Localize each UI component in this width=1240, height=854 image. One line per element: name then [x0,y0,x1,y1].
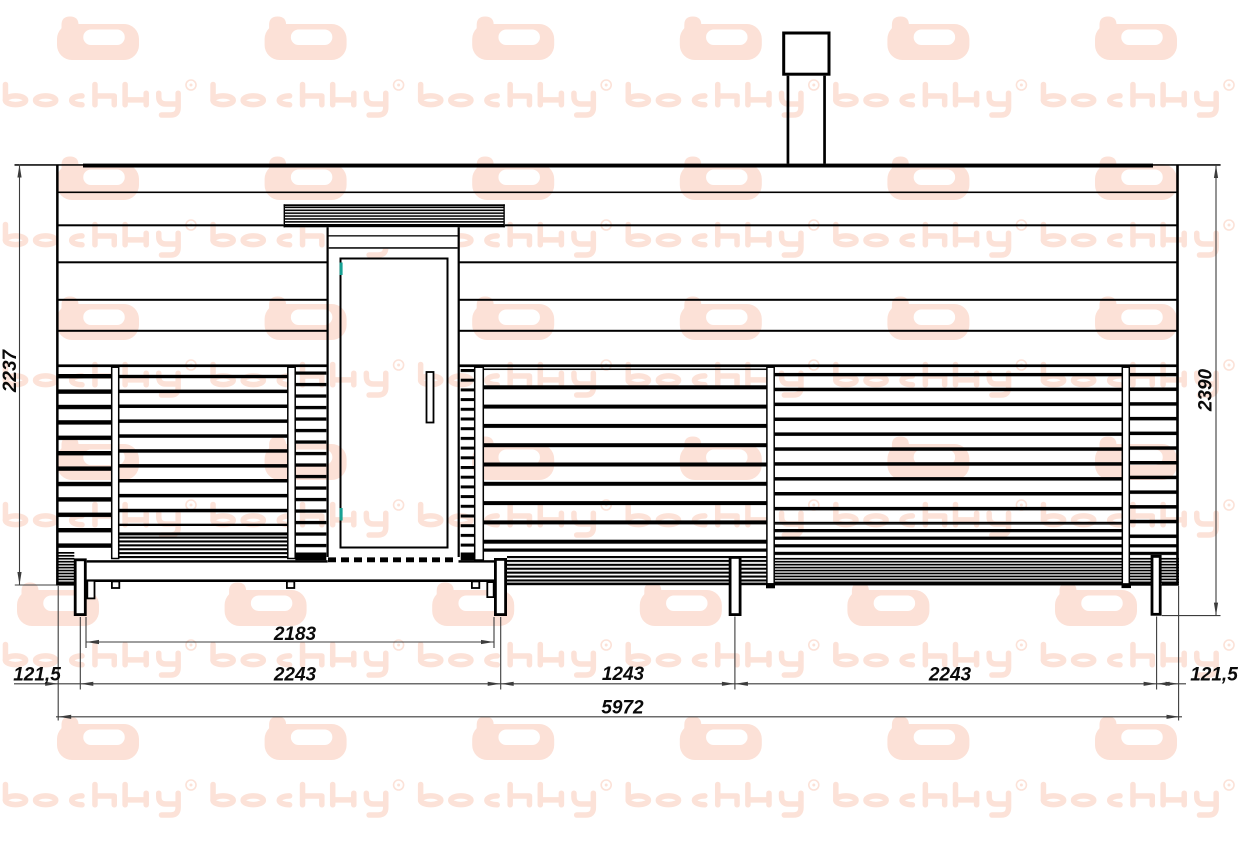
svg-text:2237: 2237 [0,348,21,393]
svg-text:2243: 2243 [928,665,972,686]
svg-text:2243: 2243 [273,665,317,686]
svg-text:2390: 2390 [1196,368,1217,412]
svg-text:121,5: 121,5 [1190,665,1238,686]
svg-text:121,5: 121,5 [13,665,61,686]
svg-text:5972: 5972 [601,698,644,719]
svg-text:2183: 2183 [273,624,317,645]
svg-text:1243: 1243 [602,664,645,685]
